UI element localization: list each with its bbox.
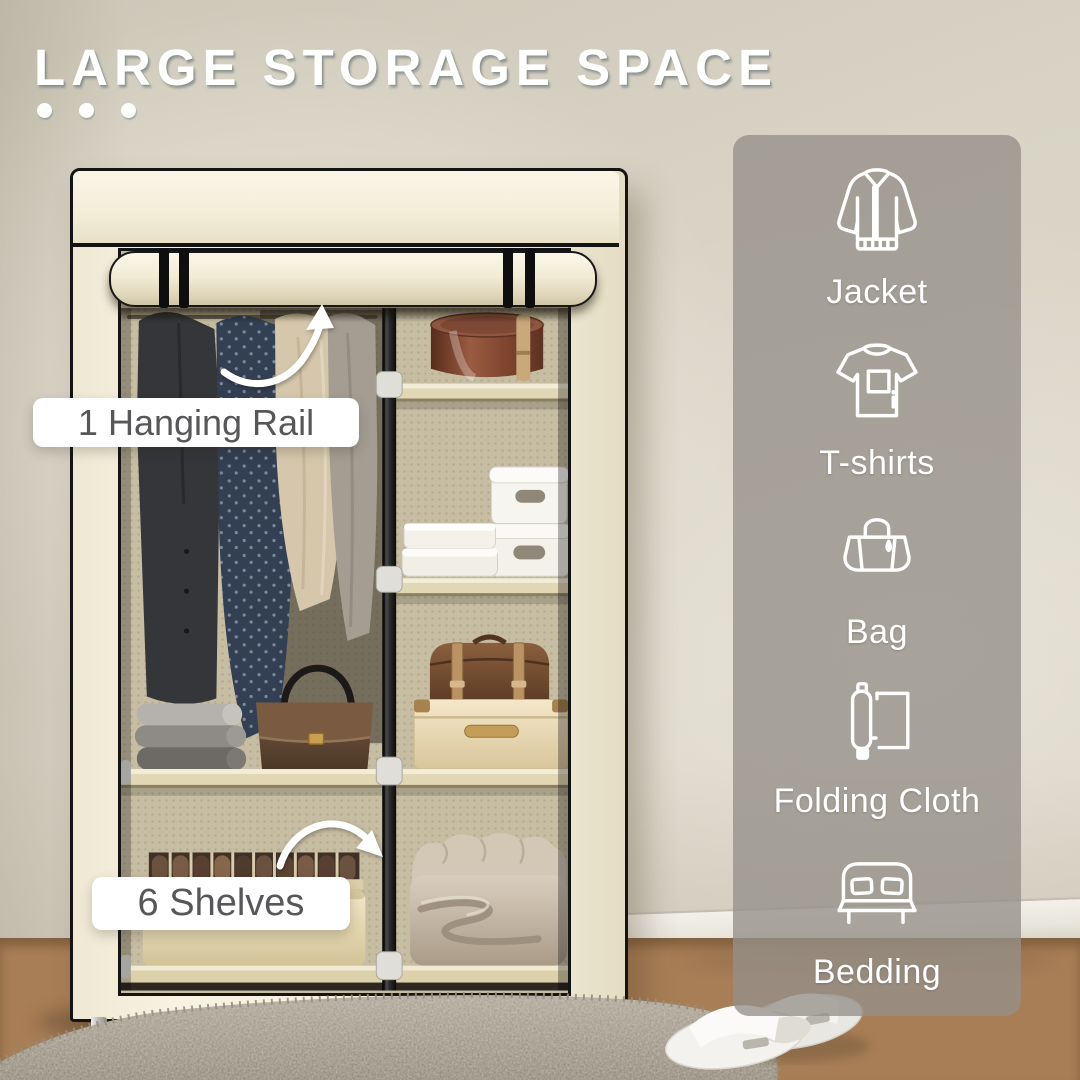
page-title: LARGE STORAGE SPACE bbox=[34, 38, 778, 97]
bedding-icon bbox=[823, 839, 931, 943]
shelf-board-2 bbox=[396, 578, 568, 604]
feature-label: Folding Cloth bbox=[774, 782, 981, 821]
wardrobe-leg bbox=[91, 1017, 107, 1051]
callout-shelves-label: 6 Shelves bbox=[138, 882, 305, 925]
door-strap bbox=[503, 248, 513, 308]
feature-label: Bag bbox=[846, 613, 908, 652]
shelf-board-1 bbox=[396, 384, 568, 410]
rolled-door bbox=[109, 251, 597, 307]
feature-bedding: Bedding bbox=[813, 839, 941, 992]
wardrobe-leg bbox=[595, 1015, 611, 1049]
shelf-board-3 bbox=[121, 769, 568, 796]
callout-hanging-rail-label: 1 Hanging Rail bbox=[78, 402, 314, 444]
feature-folding-cloth: Folding Cloth bbox=[774, 670, 981, 821]
feature-label: T-shirts bbox=[819, 444, 934, 483]
folded-blanket bbox=[410, 833, 567, 966]
feature-bag: Bag bbox=[826, 501, 928, 652]
folding-cloth-icon bbox=[826, 670, 928, 772]
shelf-board-bottom bbox=[121, 966, 568, 991]
right-vignette bbox=[558, 308, 568, 990]
features-panel: Jacket T-shirts Bag bbox=[733, 135, 1021, 1016]
decor-dot bbox=[121, 103, 136, 118]
wardrobe-leg bbox=[373, 1017, 389, 1053]
round-hat-box bbox=[431, 313, 543, 381]
title-decor-dots bbox=[37, 103, 136, 118]
feature-jacket: Jacket bbox=[825, 159, 929, 312]
bag-icon bbox=[826, 501, 928, 603]
callout-hanging-rail: 1 Hanging Rail bbox=[33, 398, 359, 447]
folded-sweaters bbox=[135, 703, 246, 770]
tshirt-icon bbox=[825, 330, 929, 434]
product-infographic: Jacket T-shirts Bag bbox=[0, 0, 1080, 1080]
leather-vanity-case bbox=[430, 637, 549, 706]
decor-dot bbox=[79, 103, 94, 118]
door-strap bbox=[525, 248, 535, 308]
decor-dot bbox=[37, 103, 52, 118]
door-strap bbox=[159, 248, 169, 308]
jacket-icon bbox=[825, 159, 929, 263]
callout-shelves: 6 Shelves bbox=[92, 877, 350, 930]
wardrobe-top-panel bbox=[73, 171, 619, 247]
feature-tshirts: T-shirts bbox=[819, 330, 934, 483]
white-storage-bins bbox=[402, 467, 568, 576]
door-strap bbox=[179, 248, 189, 308]
feature-label: Bedding bbox=[813, 953, 941, 992]
feature-label: Jacket bbox=[826, 273, 927, 312]
cream-storage-box bbox=[414, 699, 568, 769]
roll-shadow bbox=[121, 308, 568, 322]
